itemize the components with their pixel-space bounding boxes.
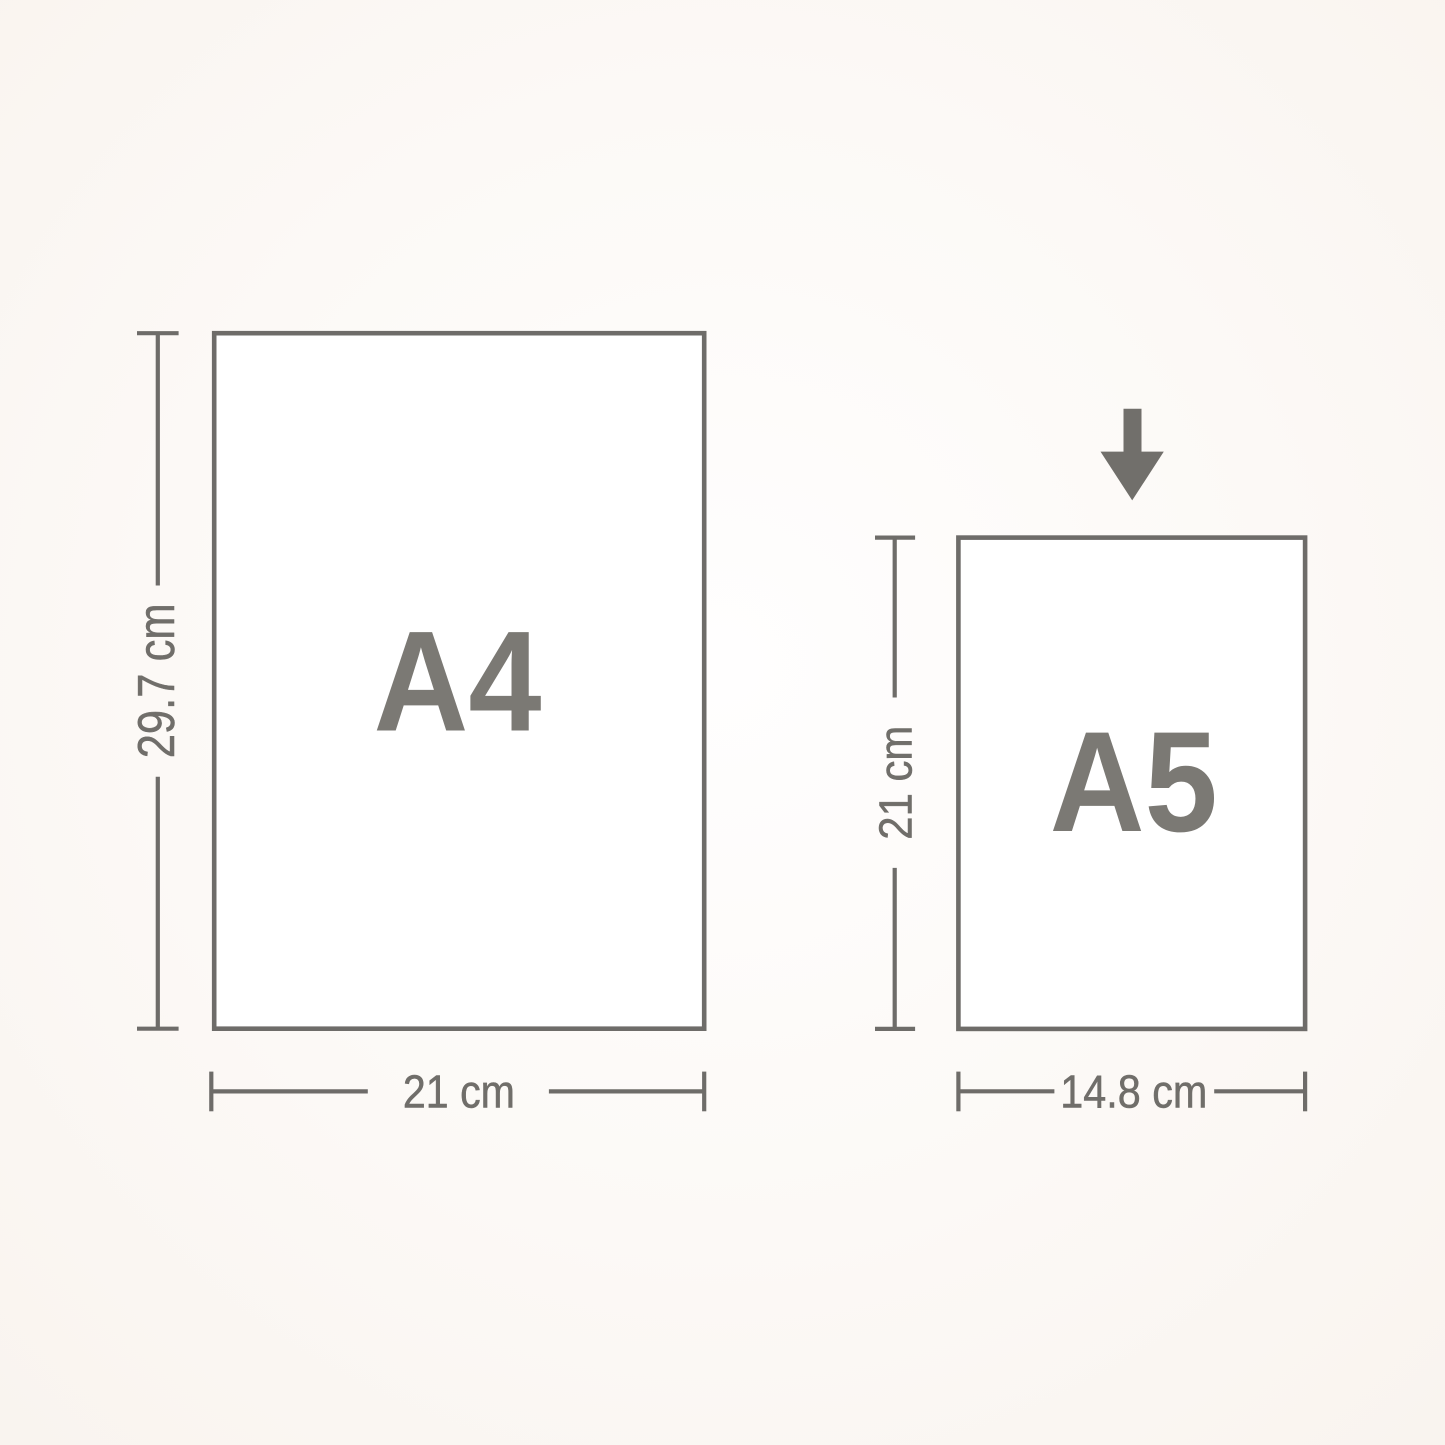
svg-text:21 cm: 21 cm xyxy=(403,1065,515,1117)
svg-text:14.8 cm: 14.8 cm xyxy=(1060,1065,1207,1117)
svg-text:29.7 cm: 29.7 cm xyxy=(128,603,186,758)
svg-text:A4: A4 xyxy=(374,603,542,762)
svg-text:A5: A5 xyxy=(1050,703,1218,862)
svg-text:21 cm: 21 cm xyxy=(869,726,921,840)
